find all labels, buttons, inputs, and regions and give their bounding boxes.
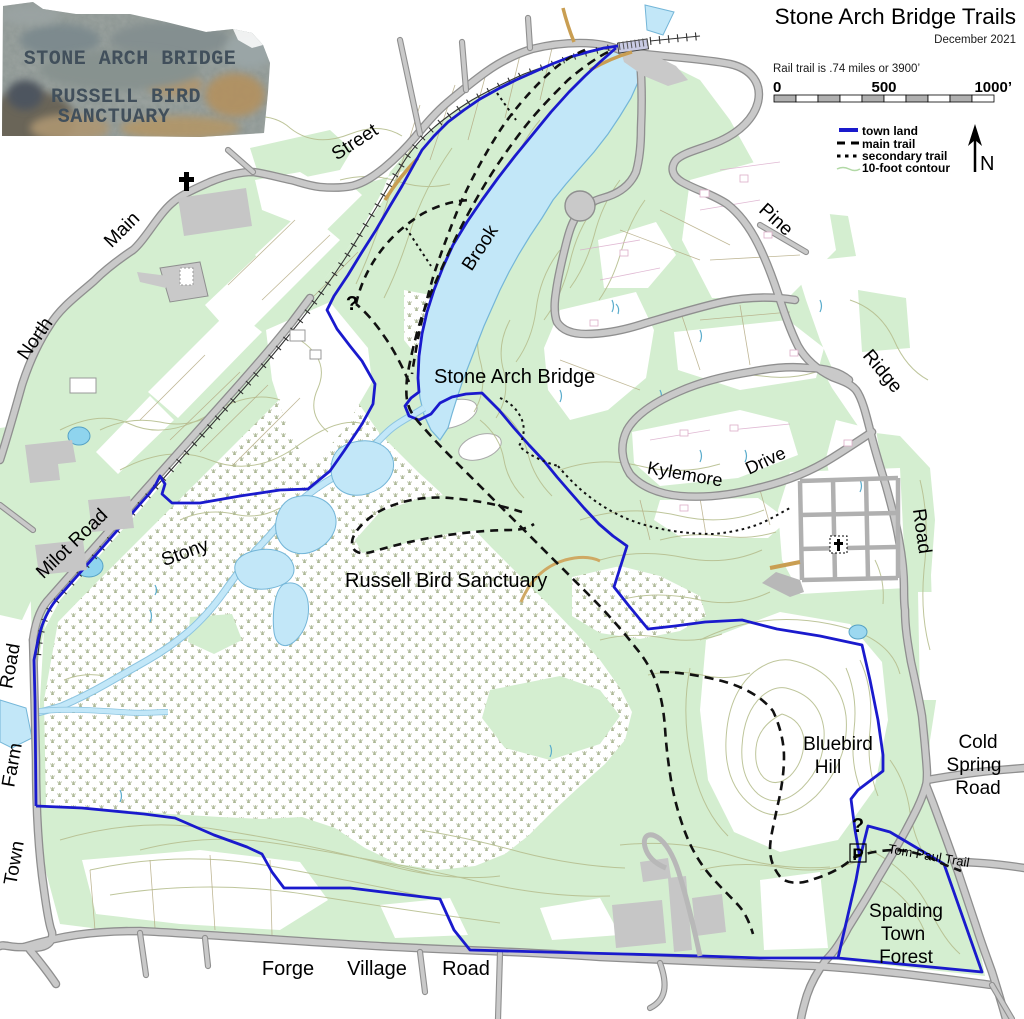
svg-text:December 2021: December 2021 <box>934 34 1016 46</box>
svg-text:Spalding: Spalding <box>869 901 943 922</box>
svg-text:town land: town land <box>862 124 918 138</box>
svg-text:Road: Road <box>442 958 490 980</box>
svg-text:1000’: 1000’ <box>974 79 1012 96</box>
svg-text:Hill: Hill <box>815 757 841 778</box>
svg-text:0: 0 <box>773 79 781 96</box>
svg-text:Forest: Forest <box>879 947 934 968</box>
svg-text:Stone Arch Bridge: Stone Arch Bridge <box>434 366 595 388</box>
svg-text:Stone Arch Bridge Trails: Stone Arch Bridge Trails <box>775 4 1016 29</box>
svg-text:Road: Road <box>955 778 1000 799</box>
svg-text:Town: Town <box>881 924 925 945</box>
svg-text:SANCTUARY: SANCTUARY <box>58 106 171 129</box>
svg-text:Village: Village <box>347 958 407 980</box>
svg-text:STONE ARCH BRIDGE: STONE ARCH BRIDGE <box>24 48 237 71</box>
svg-text:?: ? <box>852 815 864 837</box>
svg-text:Spring: Spring <box>947 755 1002 776</box>
svg-text:P: P <box>852 845 863 864</box>
svg-text:10-foot contour: 10-foot contour <box>862 161 950 175</box>
svg-text:N: N <box>980 153 994 175</box>
svg-text:Bluebird: Bluebird <box>803 734 873 755</box>
svg-text:?: ? <box>346 293 358 315</box>
svg-text:Russell Bird Sanctuary: Russell Bird Sanctuary <box>345 570 547 592</box>
svg-text:Forge: Forge <box>262 958 314 980</box>
svg-text:Rail trail is .74 miles or 390: Rail trail is .74 miles or 3900’ <box>773 63 920 75</box>
svg-text:500: 500 <box>871 79 896 96</box>
svg-text:Cold: Cold <box>958 732 997 753</box>
